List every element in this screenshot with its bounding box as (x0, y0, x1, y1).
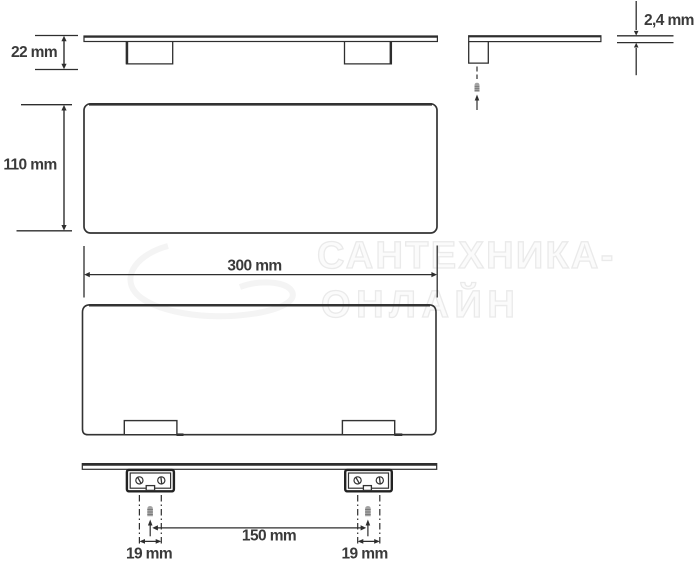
svg-text:150 mm: 150 mm (242, 527, 296, 544)
svg-text:22 mm: 22 mm (11, 44, 57, 61)
svg-text:САНТЕХНИКА-: САНТЕХНИКА- (317, 235, 616, 277)
svg-text:ОНЛАЙН: ОНЛАЙН (321, 281, 520, 326)
svg-text:19 mm: 19 mm (126, 546, 172, 563)
svg-text:19 mm: 19 mm (342, 546, 388, 563)
svg-text:2,4 mm: 2,4 mm (644, 12, 694, 29)
svg-text:110 mm: 110 mm (3, 157, 56, 174)
svg-text:300 mm: 300 mm (227, 257, 281, 274)
